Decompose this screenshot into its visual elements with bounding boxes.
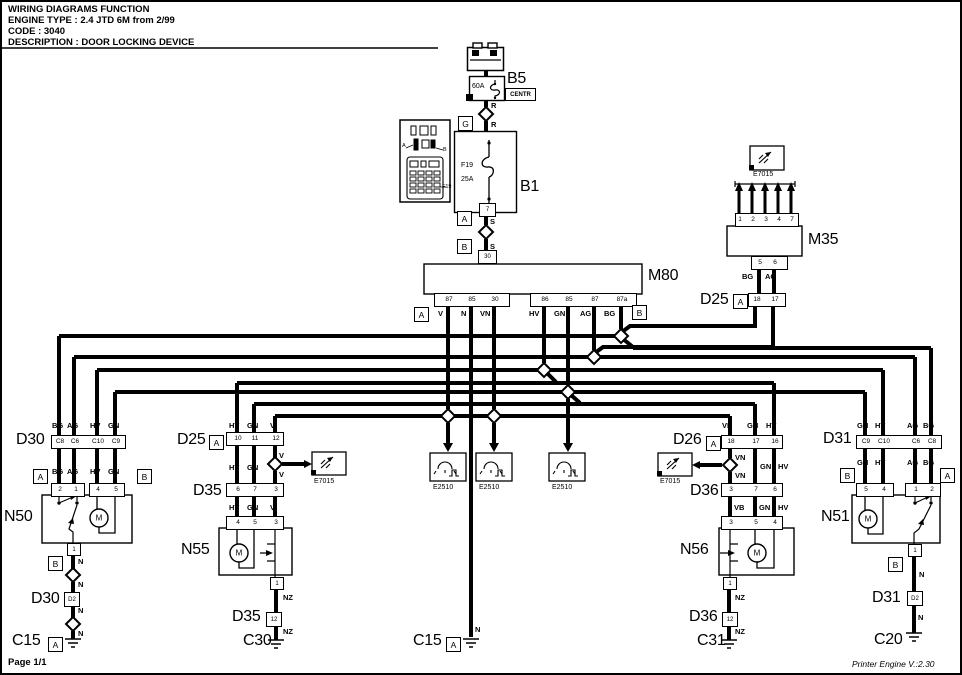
wire-label: N [78,581,83,589]
connector-d36-bottom-label: D36 [689,609,717,625]
conn-letter-a-feed: A [457,211,472,226]
pin-label: 87 [591,296,598,303]
unit-n51-label: N51 [821,509,849,525]
pin-label: 3 [274,486,278,493]
pin-label: 2 [751,216,755,223]
motor-letter: M [236,549,243,558]
wire-label: N [78,630,83,638]
ground-c20-label: C20 [874,632,902,648]
wire-label: VB [734,504,744,512]
pin-label: 4 [773,519,777,526]
wire-label: HV [766,422,776,430]
pin-box-12: 12 [722,612,738,627]
wire-label-bg: BG [604,310,615,318]
conn-letter-b-feed: B [457,239,472,254]
n55-pin-strip: 4 5 3 [226,516,284,530]
connector-d30-label: D30 [16,432,44,448]
wire-label: VN [735,454,745,462]
wire-label: GN [247,422,258,430]
conn-letter-b-n51: B [888,557,903,572]
pin-box-1: 1 [270,577,284,590]
wire-label: V [270,422,275,430]
pin-label: 18 [753,296,760,303]
pin-label: 2 [930,486,934,493]
header-line-1: WIRING DIAGRAMS FUNCTION [8,5,149,15]
pin-label: 5 [253,519,257,526]
connector-d25-label: D25 [177,432,205,448]
wire-label: GN [108,422,119,430]
d26-pin-strip: 18 17 16 [721,435,783,449]
battery-icon [468,43,504,71]
motor-letter: M [754,549,761,558]
conn-letter-a-d25top: A [733,294,748,309]
wire-label-gn: GN [554,310,565,318]
conn-letter-b-d30: B [137,469,152,484]
wire-label: N [475,626,480,634]
conn-letter-a-d25: A [209,435,224,450]
wire-label-n: N [461,310,466,318]
wire-label: BG [923,422,934,430]
n50-pin-strip-motor: 4 5 [89,483,125,497]
pin-box-12: 12 [266,612,282,627]
wire-label: GN [747,422,758,430]
pin-box-1: 1 [723,577,737,590]
pin-label: 4 [882,486,886,493]
n50-pin-strip-switch: 2 1 [51,483,85,497]
e2510-ref-2: E2510 [479,484,499,491]
wire-label: GN [760,463,771,471]
pin-label: 4 [96,486,100,493]
inset-label-b: B [443,148,447,154]
pin-label: 3 [274,519,278,526]
conn-letter-b-d31: B [840,468,855,483]
pin-label: 7 [790,216,794,223]
pin-label: 87a [617,296,628,303]
conn-letter-a-d26: A [706,436,721,451]
n51-pin-strip-switch: 1 2 [905,483,941,497]
connector-d36-label: D36 [690,483,718,499]
relay-m80-outline [424,264,642,294]
wire-label: N [78,607,83,615]
wire-label: HV [875,422,885,430]
wire-label: BG [52,468,63,476]
fusebox-label: B1 [520,179,539,195]
m35-bottom-pin-strip: 5 6 [751,256,788,270]
unit-n50-label: N50 [4,509,32,525]
wire-label-v: V [438,310,443,318]
pin-label: 87 [445,296,452,303]
wire-label: N [78,558,83,566]
header-line-3: CODE : 3040 [8,27,65,37]
e2510-symbols [430,453,585,481]
wire-label: VN [722,422,732,430]
ground-c30-label: C30 [243,633,271,649]
pin-label: 6 [236,486,240,493]
pin-label: 4 [236,519,240,526]
wire-label: GN [247,504,258,512]
wire-label-bg-m35: BG [742,273,753,281]
connector-d26-label: D26 [673,432,701,448]
pin-label: C10 [878,438,890,445]
wire-label-ag-m35: AG [765,273,776,281]
wire-label: N [918,614,923,622]
conn-letter-a-d31: A [940,468,955,483]
wire-label: HV [875,459,885,467]
header-line-2: ENGINE TYPE : 2.4 JTD 6M from 2/99 [8,16,175,26]
e2510-ref-3: E2510 [552,484,572,491]
motor-letter: M [96,514,103,523]
pin-label: 7 [754,486,758,493]
wire-label: GN [857,459,868,467]
wire-label: GN [108,468,119,476]
pin-label: 85 [468,296,475,303]
wire-label: NZ [283,594,293,602]
d30-pin-strip: C8 C6 C10 C9 [51,435,126,449]
ground-c15-mid-label: C15 [413,633,441,649]
pin-label: 4 [777,216,781,223]
pin-label: 17 [752,438,759,445]
ground-c31-label: C31 [697,633,725,649]
wire-label-hv: HV [529,310,539,318]
wire-label: V [279,452,284,460]
pin-label: 5 [758,259,762,266]
pin-label: 1 [74,486,78,493]
pin-label: 6 [773,486,777,493]
m35-arrow-wires [739,190,791,213]
unit-n56-label: N56 [680,542,708,558]
pin-box-1: 1 [908,544,922,557]
wire-label: BG [52,422,63,430]
connector-d35-bottom-label: D35 [232,609,260,625]
pin-label: 85 [565,296,572,303]
connector-d31-label: D31 [823,431,851,447]
ground-symbols [65,633,922,648]
wire-label: BG [923,459,934,467]
wire-label: HV [778,504,788,512]
wire-label: GN [247,464,258,472]
m35-top-pin-strip: 1 2 3 4 7 [735,213,799,227]
printer-engine-version: Printer Engine V.:2.30 [852,660,935,669]
conn-letter-b-m80: B [632,305,647,320]
e7015-symbols [311,146,784,476]
module-m35-outline [727,226,802,256]
pin-box-d2: D2 [907,591,923,606]
unit-n50-outline [42,495,132,543]
wire-label: NZ [735,628,745,636]
conn-letter-g: G [458,116,473,131]
pin-label: 1 [914,486,918,493]
wire-label: HV [229,464,239,472]
pin-label: 11 [252,435,259,442]
conn-letter-a-d30: A [33,469,48,484]
pin-label: 1 [738,216,742,223]
conn-letter-a-c15l: A [48,637,63,652]
pin-box-1: 1 [67,543,81,556]
fuse-rating-60a: 60A [472,83,484,90]
wiring-layer [2,2,960,673]
e7015-ref-mid: E7015 [314,478,334,485]
d35-pin-strip: 6 7 3 [226,483,284,497]
pin-label: 18 [727,438,734,445]
pin-label: 5 [754,519,758,526]
d36-pin-strip: 3 7 6 [721,483,783,497]
wire-label: NZ [283,628,293,636]
wire-label: N [919,571,924,579]
fuse-rating-25a: 25A [461,176,473,183]
ground-c15-left-label: C15 [12,633,40,649]
pin-box-d2: D2 [64,592,80,607]
component-outlines [42,132,940,576]
unit-n55-label: N55 [181,542,209,558]
centr-tag: CENTR [505,88,536,101]
pin-label: C10 [92,438,104,445]
connector-d25-top-label: D25 [700,292,728,308]
pin-label: 5 [864,486,868,493]
header-line-4: DESCRIPTION : DOOR LOCKING DEVICE [8,38,194,48]
e7015-ref-top: E7015 [753,171,773,178]
wire-label: V [270,504,275,512]
e2510-ref-1: E2510 [433,484,453,491]
wire-label: HV [90,468,100,476]
pin-box-30: 30 [478,250,497,264]
wire-label: HV [229,504,239,512]
wire-label: V [279,471,284,479]
pin-label: 5 [114,486,118,493]
pin-label: 16 [771,438,778,445]
page-number: Page 1/1 [8,658,47,668]
wire-label: AG [907,422,918,430]
e7015-ref-right: E7015 [660,478,680,485]
wire-label-r1: R [491,102,496,110]
pin-label: C9 [112,438,120,445]
wire-label: AG [907,459,918,467]
inset-label-f19: F19 [442,185,451,191]
fusebox-b1-outline [455,132,517,213]
wire-label-vn: VN [480,310,490,318]
m80-pin-strip-right: 86 85 87 87a [530,293,637,307]
conn-letter-a-c15m: A [446,637,461,652]
d25-pin-strip: 10 11 12 [226,432,284,446]
battery-fuse-label: B5 [507,71,526,87]
wire-label-s1: S [490,218,495,226]
wire-label: VN [735,472,745,480]
pin-label: C9 [862,438,870,445]
wiring-diagram-page: WIRING DIAGRAMS FUNCTION ENGINE TYPE : 2… [0,0,962,675]
wire-label-r2: R [491,121,496,129]
wire-label: GN [759,504,770,512]
wire-label: HV [229,422,239,430]
pin-label: 7 [253,486,257,493]
connector-d35-label: D35 [193,483,221,499]
d31-pin-strip: C9 C10 C6 C8 [856,435,942,449]
pin-label: 2 [58,486,62,493]
pin-label: C8 [56,438,64,445]
pin-label: 86 [541,296,548,303]
wire-label: HV [90,422,100,430]
pin-box-7: 7 [479,203,496,217]
fuse-name-f19: F19 [461,162,473,169]
wire-label: AG [67,468,78,476]
pin-label: 3 [764,216,768,223]
pin-label: 3 [729,519,733,526]
pin-label: 30 [491,296,498,303]
motor-letter: M [865,515,872,524]
connector-d30-bottom-label: D30 [31,591,59,607]
wire-label: NZ [735,594,745,602]
pin-label: C6 [71,438,79,445]
pin-label: C8 [928,438,936,445]
wire-label: GN [857,422,868,430]
m80-pin-strip-left: 87 85 30 [434,293,510,307]
pin-label: 10 [234,435,241,442]
conn-letter-a-m80: A [414,307,429,322]
pin-label: 17 [771,296,778,303]
n56-pin-strip: 3 5 4 [721,516,783,530]
relay-m80-label: M80 [648,268,678,284]
pin-label: 3 [729,486,733,493]
connector-d31-bottom-label: D31 [872,590,900,606]
inset-label-a: A [402,144,406,150]
wire-label: AG [67,422,78,430]
pin-label: C6 [912,438,920,445]
wire-label: HV [778,463,788,471]
conn-letter-b-n50: B [48,556,63,571]
n51-pin-strip-motor: 5 4 [856,483,894,497]
pin-label: 12 [272,435,279,442]
d25-top-pin-strip: 18 17 [748,293,786,307]
wire-label-ag: AG [580,310,591,318]
module-m35-label: M35 [808,232,838,248]
pin-label: 6 [773,259,777,266]
